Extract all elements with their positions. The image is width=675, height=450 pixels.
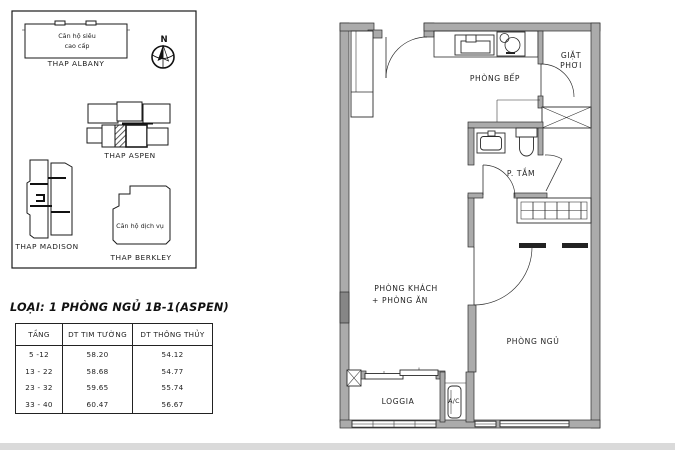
bedroom-label: PHÒNG NGỦ	[507, 336, 560, 346]
area-table-row: 33 - 40 60.47 56.67	[16, 396, 212, 413]
loggia-label: LOGGIA	[382, 397, 415, 406]
stove	[497, 32, 525, 56]
kitchen-sink	[455, 35, 494, 55]
col-header-net: DT THÔNG THỦY	[133, 324, 212, 345]
wardrobe	[517, 198, 591, 223]
kitchen-label: PHÒNG BẾP	[470, 73, 520, 83]
column-box	[347, 370, 361, 386]
area-table-row: 13 - 22 58.68 54.77	[16, 363, 212, 380]
net-area-cell: 54.12	[133, 346, 212, 363]
gross-area-cell: 58.20	[63, 346, 133, 363]
tower-berkley-label: THAP BERKLEY	[110, 253, 172, 262]
area-table-header-row: TẦNG DT TIM TƯỜNG DT THÔNG THỦY	[16, 324, 212, 346]
unit-type-title: LOẠI: 1 PHÒNG NGỦ 1B-1(ASPEN)	[10, 301, 340, 314]
tower-berkley-footprint: Căn hộ dịch vụ	[113, 186, 170, 244]
gross-area-cell: 59.65	[63, 380, 133, 397]
page-edge-strip	[0, 443, 675, 450]
albany-note-line1: Căn hộ siêu	[58, 32, 96, 40]
tower-aspen-label: THAP ASPEN	[103, 151, 155, 160]
bathroom-label: P. TẮM	[507, 168, 535, 178]
laundry-storage-cabinet	[542, 107, 591, 128]
bedroom-wall-dash2	[562, 243, 588, 248]
area-table-row: 5 -12 58.20 54.12	[16, 346, 212, 363]
bedroom-window	[500, 421, 569, 427]
area-table-row: 23 - 32 59.65 55.74	[16, 380, 212, 397]
col-header-floor: TẦNG	[16, 324, 63, 345]
aspen-unit-highlight	[115, 125, 126, 147]
tower-albany-footprint: Căn hộ siêu cao cấp	[22, 21, 130, 58]
net-area-cell: 56.67	[133, 396, 212, 413]
bedroom-wall-dash	[519, 243, 546, 248]
berkley-note: Căn hộ dịch vụ	[116, 222, 164, 230]
toilet	[516, 128, 537, 156]
floor-range-cell: 23 - 32	[16, 380, 63, 397]
col-header-gross: DT TIM TƯỜNG	[63, 324, 133, 345]
svg-text:N: N	[160, 35, 167, 45]
gross-area-cell: 60.47	[63, 396, 133, 413]
tower-madison-label: THAP MADISON	[14, 242, 78, 251]
area-table: TẦNG DT TIM TƯỜNG DT THÔNG THỦY 5 -12 58…	[15, 323, 213, 414]
tower-albany-label: THAP ALBANY	[47, 59, 105, 68]
site-plan: Căn hộ siêu cao cấp THAP ALBANY N	[12, 11, 196, 268]
gross-area-cell: 58.68	[63, 363, 133, 380]
bedroom-window-small	[475, 421, 496, 427]
laundry-label-2: PHƠI	[560, 61, 582, 70]
laundry-label-1: GIẶT	[561, 51, 581, 60]
bedroom-door	[474, 247, 532, 305]
floor-range-cell: 5 -12	[16, 346, 63, 363]
floor-range-cell: 33 - 40	[16, 396, 63, 413]
entry-door	[386, 37, 427, 78]
laundry-wall	[538, 31, 543, 108]
floorplan-page: Căn hộ siêu cao cấp THAP ALBANY N	[0, 0, 675, 450]
loggia-sliding-door	[365, 368, 438, 380]
loggia-window	[352, 421, 436, 427]
living-label-1: PHÒNG KHÁCH	[374, 284, 438, 293]
ac-label: A/C	[448, 398, 460, 405]
unit-floor-plan: PHÒNG BẾP GIẶT PHƠI P. TẮM PHÒNG KHÁCH +…	[340, 23, 600, 428]
bathroom-sink	[477, 131, 505, 153]
floor-range-cell: 13 - 22	[16, 363, 63, 380]
bedroom-niche-door	[545, 155, 562, 191]
albany-note-line2: cao cấp	[65, 42, 90, 50]
net-area-cell: 55.74	[133, 380, 212, 397]
living-label-2: + PHÒNG ĂN	[372, 296, 428, 305]
entry-closet	[351, 31, 373, 117]
living-bedroom-wall	[466, 305, 476, 422]
net-area-cell: 54.77	[133, 363, 212, 380]
